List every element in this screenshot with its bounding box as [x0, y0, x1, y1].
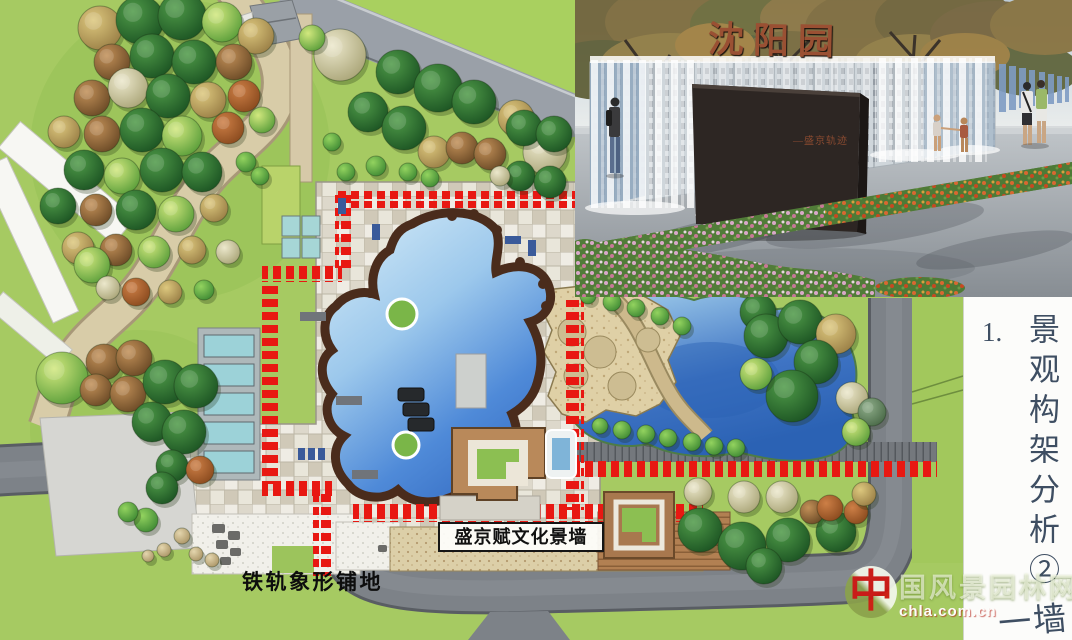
right-lawn-band	[912, 297, 963, 563]
pond-island	[387, 299, 417, 329]
label-rail-paving: 铁轨象形铺地	[242, 566, 383, 596]
entrance-photo: 沈阳园 —盛京轨迹	[575, 0, 1072, 297]
pond-island	[393, 432, 419, 458]
watermark-logo: 中	[845, 566, 897, 618]
waterfall	[590, 60, 702, 208]
watermark-site-name: 国风景园林网	[899, 566, 1072, 605]
slide: 沈阳园 —盛京轨迹 1. 景观构架分析② 一墙 铁轨象形铺地 盛京赋文化景墙 中…	[0, 0, 1072, 640]
caption-title: 景观构架分析②	[1026, 313, 1057, 593]
label-culture-wall: 盛京赋文化景墙	[438, 522, 604, 552]
caption-index: 1.	[982, 317, 1002, 348]
second-pavilion	[604, 492, 674, 558]
water-pier	[456, 354, 486, 408]
watermark-domain: chla.com.cn	[899, 603, 1072, 620]
sign-subtitle: —盛京轨迹	[793, 132, 848, 147]
gravel-garden	[192, 514, 400, 574]
sign-title: 沈阳园	[707, 10, 858, 65]
watermark: 中 国风景园林网 chla.com.cn	[845, 566, 1072, 620]
